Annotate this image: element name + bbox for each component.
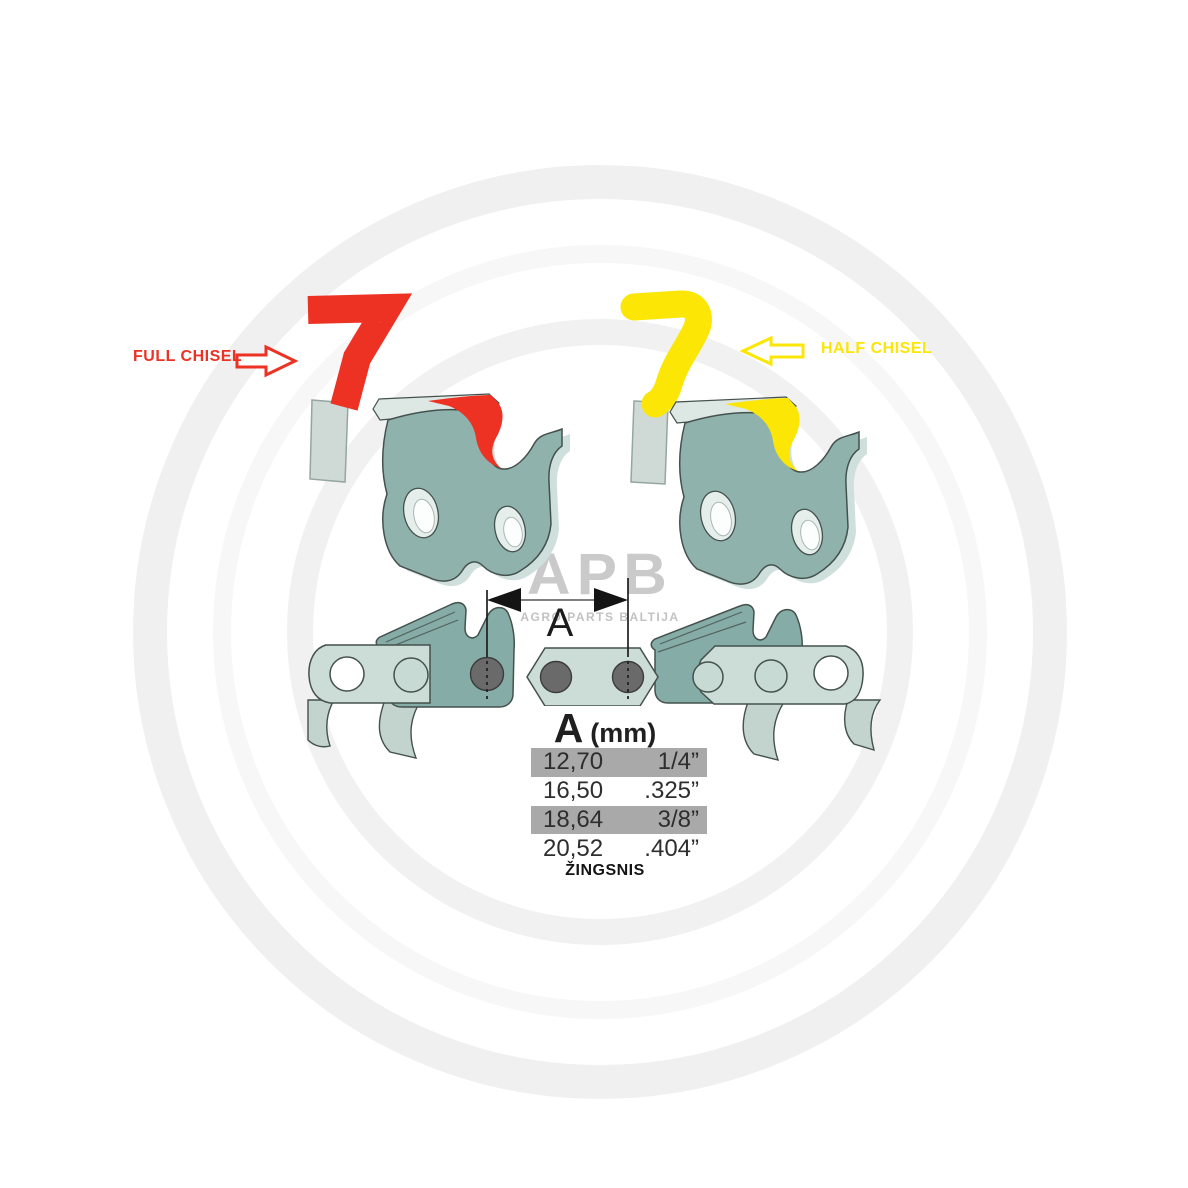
tie-strap-hole: [394, 658, 428, 692]
tie-strap-empty-hole: [814, 656, 848, 690]
full-chisel-side-plate: [310, 400, 348, 482]
pitch-table: 12,70 1/4” 16,50 .325” 18,64 3/8” 20,52 …: [531, 748, 707, 863]
full-chisel-right-arrow-outline-icon: [237, 347, 295, 375]
tie-strap-hole: [755, 660, 787, 692]
half-chisel-left-arrow-outline-icon: [743, 338, 803, 364]
pitch-table-header: A (mm): [512, 706, 698, 750]
pitch-inch-value: 1/4”: [658, 748, 699, 776]
pitch-mm-value: 20,52: [543, 835, 603, 863]
dimension-arrowhead-right-icon: [594, 588, 628, 612]
product-diagram-canvas: APB AGRO PARTS BALTIJA: [0, 0, 1188, 1188]
half-chisel-cutter-link: [670, 397, 867, 589]
chain-tie-strap-right: [693, 646, 863, 704]
pitch-table-header-unit: (mm): [590, 718, 656, 749]
full-chisel-profile: [308, 308, 387, 482]
chain-illustration: [0, 0, 1188, 1188]
pitch-mm-value: 12,70: [543, 748, 603, 776]
drive-link-tooth: [845, 700, 880, 750]
full-chisel-cutter-link: [373, 394, 570, 586]
pitch-mm-value: 18,64: [543, 806, 603, 834]
full-chisel-label: FULL CHISEL: [133, 348, 242, 366]
chain-rivet-measured: [541, 662, 572, 693]
pitch-table-row: 16,50 .325”: [531, 777, 707, 806]
pitch-inch-value: .325”: [644, 777, 699, 805]
drive-link-tooth: [379, 700, 421, 758]
drive-link-tooth: [308, 700, 334, 747]
pitch-table-row: 12,70 1/4”: [531, 748, 707, 777]
pitch-table-header-dimension: A: [554, 706, 584, 750]
pitch-table-footer: ŽINGSNIS: [512, 862, 698, 880]
half-chisel-label: HALF CHISEL: [821, 340, 932, 358]
tie-strap-hole: [693, 662, 723, 692]
dimension-a-label: A: [530, 601, 590, 646]
half-chisel-cutter-cross-section: [634, 304, 698, 404]
pitch-inch-value: 3/8”: [658, 806, 699, 834]
chain-tie-strap-left: [309, 645, 430, 703]
tie-strap-empty-hole: [330, 657, 364, 691]
pitch-inch-value: .404”: [644, 835, 699, 863]
pitch-table-row: 18,64 3/8”: [531, 806, 707, 835]
full-chisel-cutter-cross-section: [308, 308, 387, 407]
pitch-table-row: 20,52 .404”: [531, 834, 707, 863]
pitch-mm-value: 16,50: [543, 777, 603, 805]
drive-link-tooth: [743, 702, 784, 760]
